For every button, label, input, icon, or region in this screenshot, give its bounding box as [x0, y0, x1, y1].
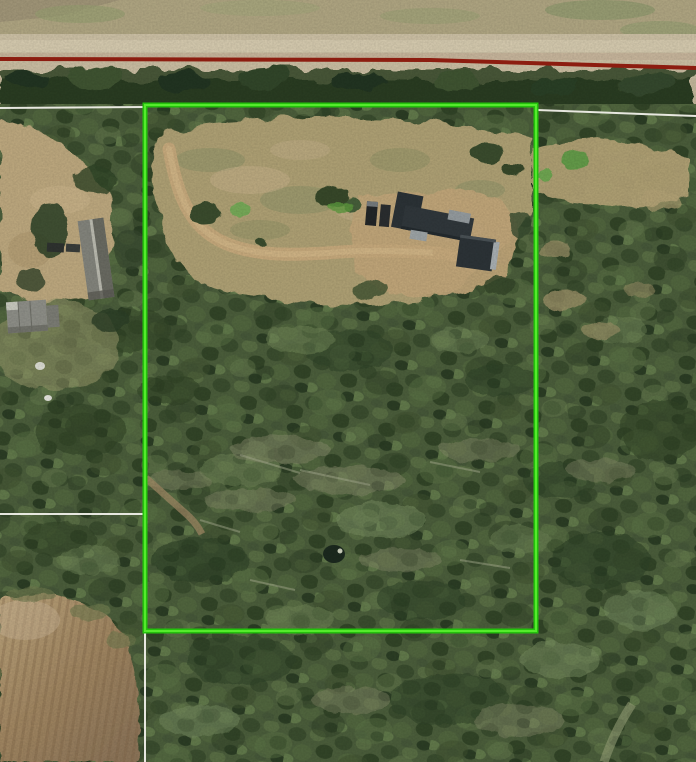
imagery-grain: [0, 0, 696, 762]
parcel-line-north-west: [0, 107, 145, 108]
satellite-map[interactable]: [0, 0, 696, 762]
